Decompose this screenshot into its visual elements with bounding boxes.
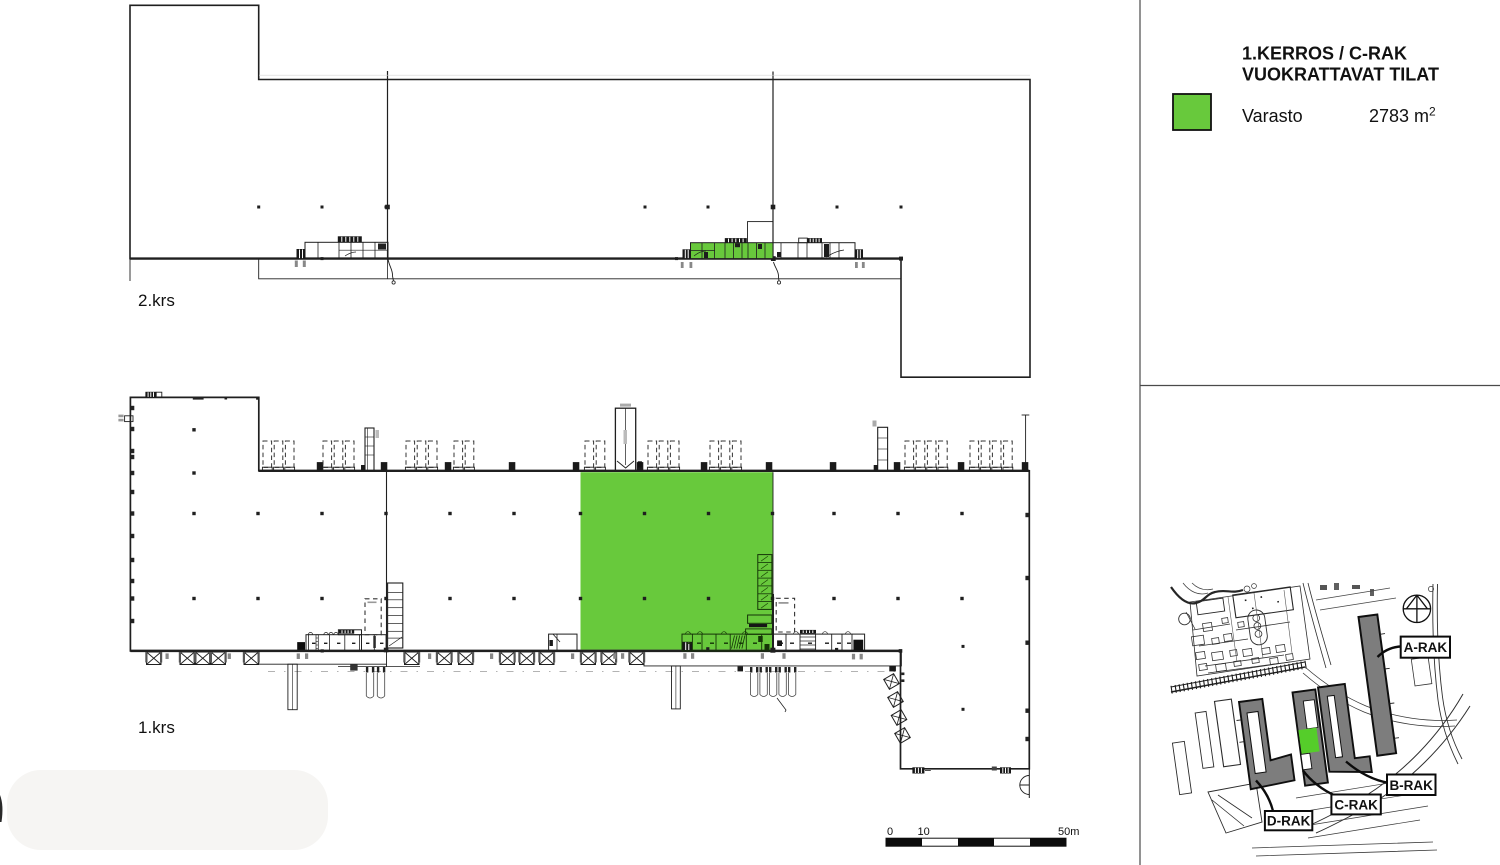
svg-text:2.krs: 2.krs [138, 291, 175, 310]
svg-text:Varasto: Varasto [1242, 106, 1303, 126]
svg-text:10: 10 [918, 826, 930, 838]
svg-text:1.KERROS / C-RAK: 1.KERROS / C-RAK [1242, 44, 1407, 64]
svg-text:0: 0 [887, 826, 893, 838]
svg-text:D-RAK: D-RAK [1267, 814, 1311, 829]
svg-text:1.krs: 1.krs [138, 718, 175, 737]
svg-text:2783 m2: 2783 m2 [1369, 105, 1436, 127]
svg-text:A-RAK: A-RAK [1404, 640, 1448, 655]
svg-text:C-RAK: C-RAK [1334, 798, 1378, 813]
svg-text:50m: 50m [1058, 826, 1079, 838]
svg-text:B-RAK: B-RAK [1389, 778, 1433, 793]
svg-text:VUOKRATTAVAT TILAT: VUOKRATTAVAT TILAT [1242, 65, 1439, 85]
